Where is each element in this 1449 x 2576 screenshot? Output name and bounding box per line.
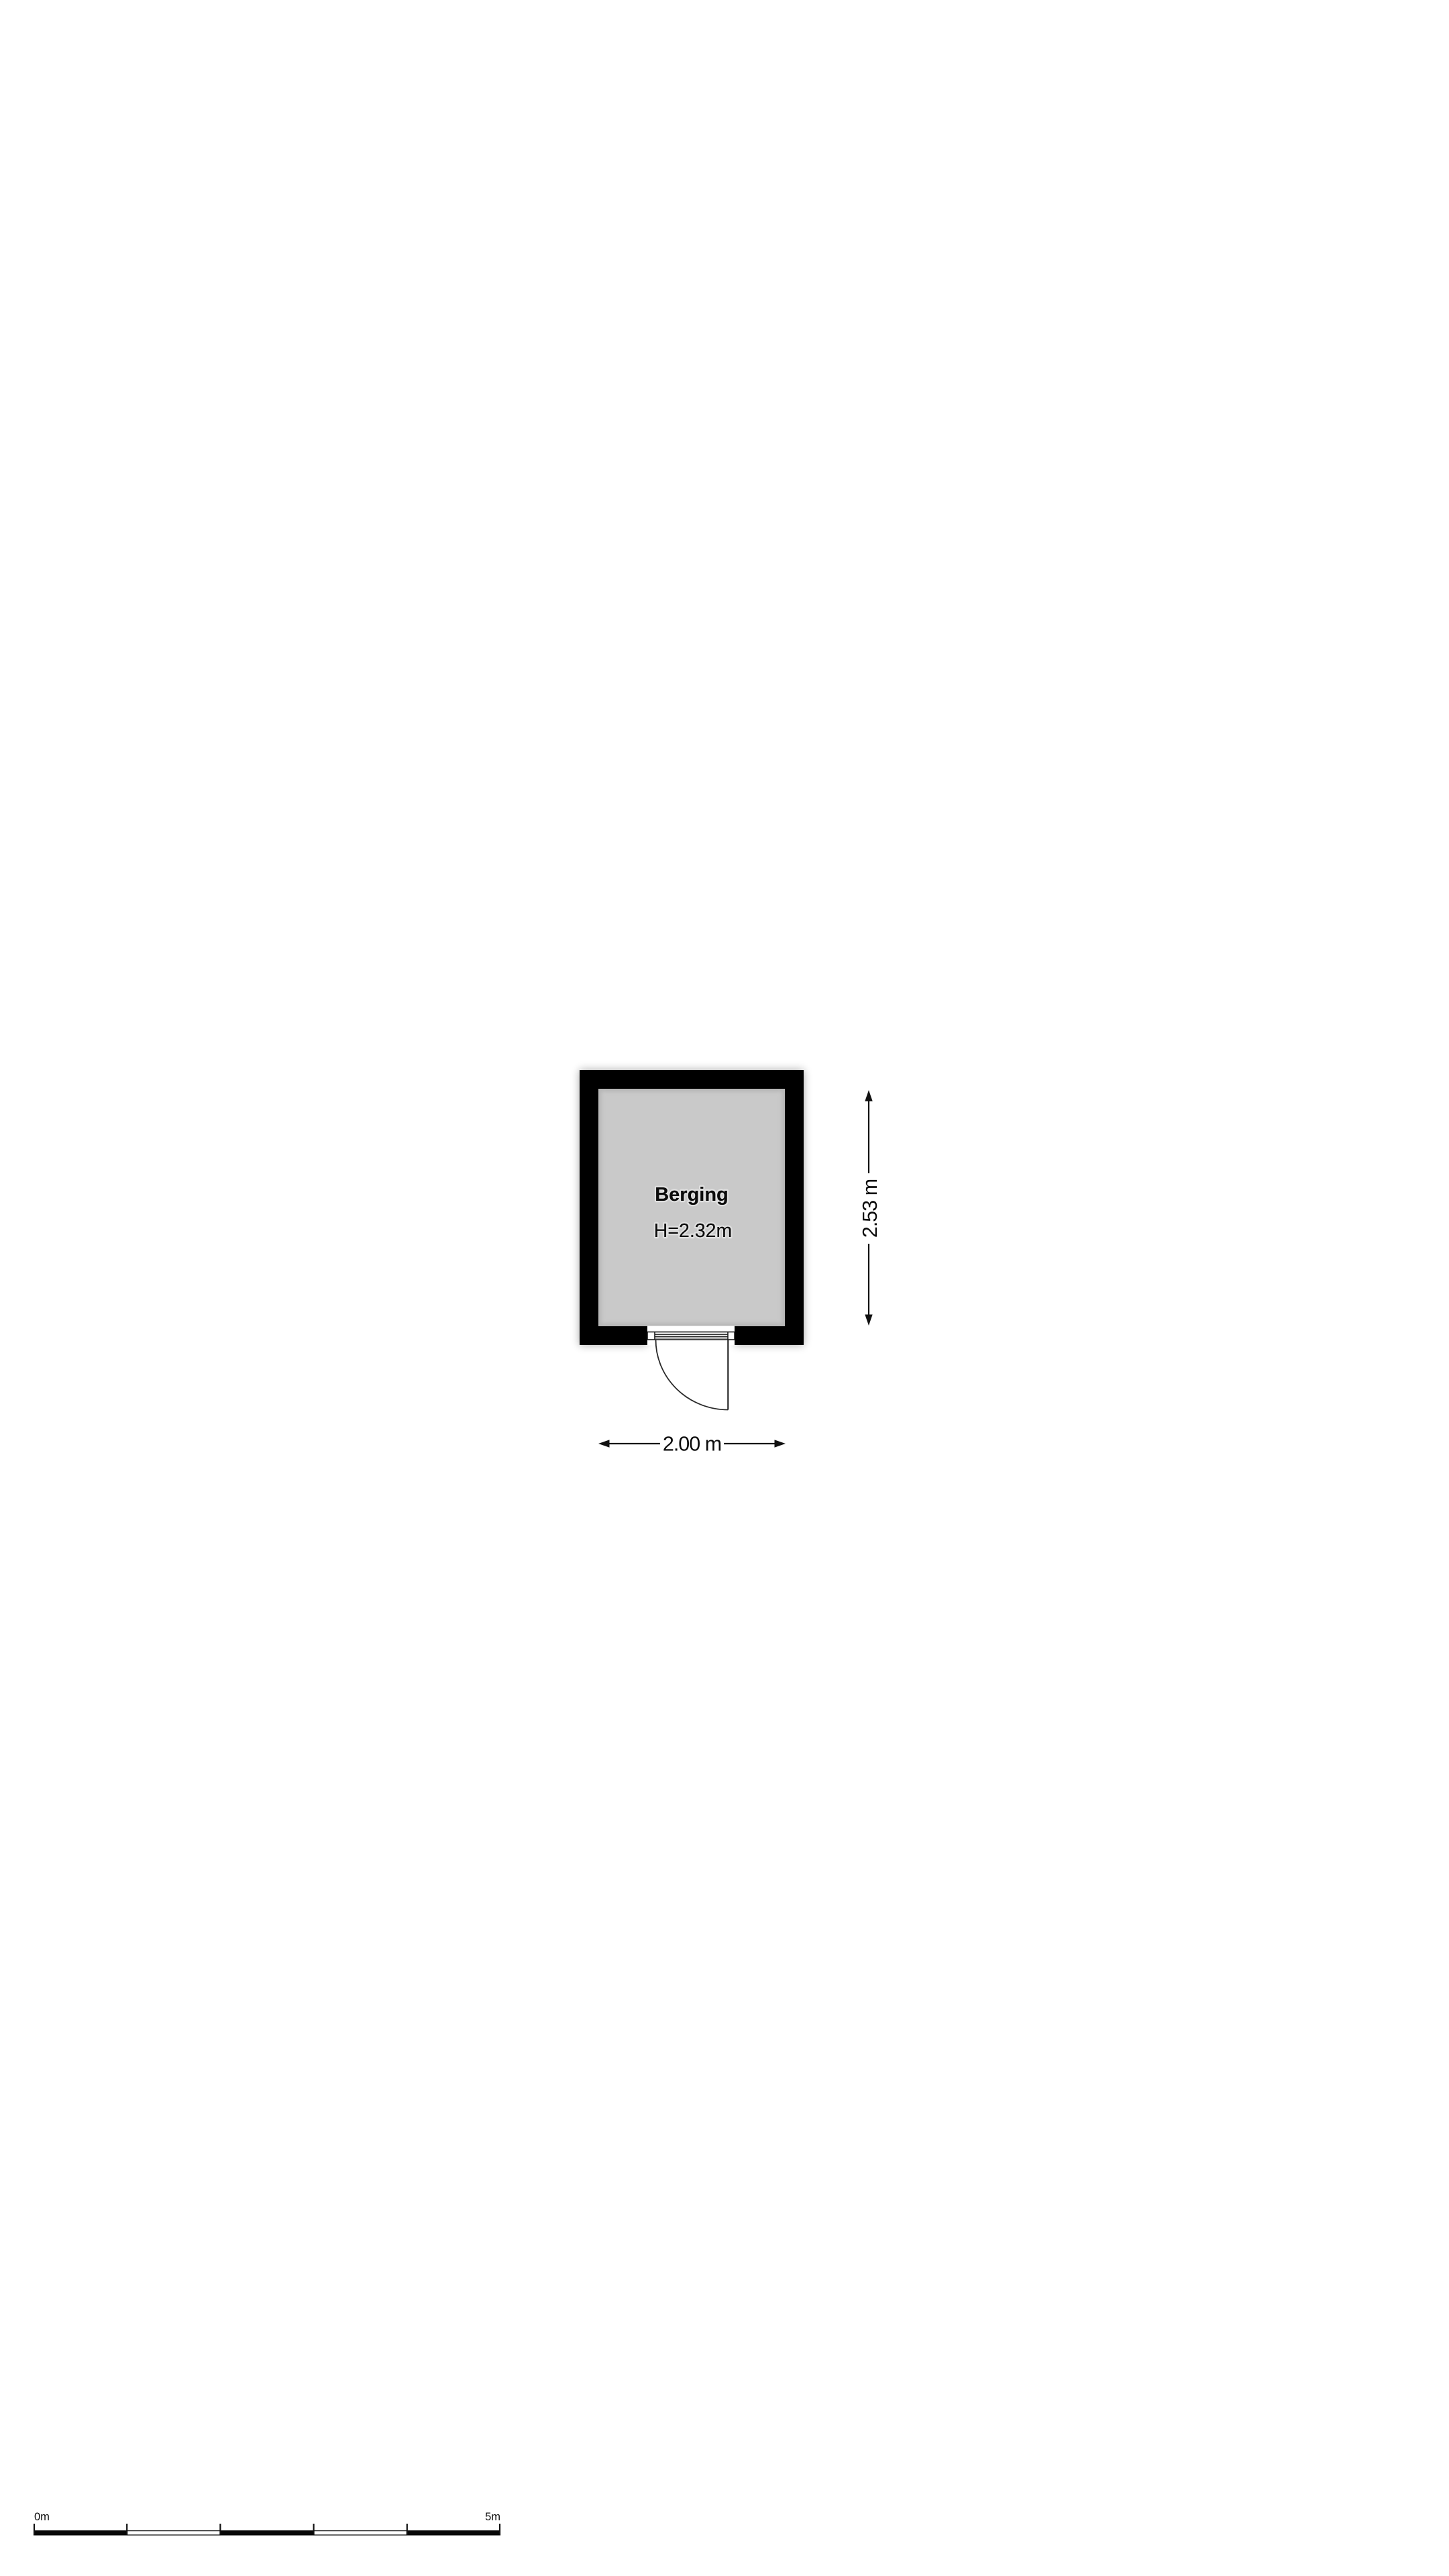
svg-text:0m: 0m xyxy=(34,2511,50,2523)
svg-text:Berging: Berging xyxy=(655,1184,729,1205)
svg-text:H=2.32m: H=2.32m xyxy=(654,1220,732,1242)
svg-text:2.53 m: 2.53 m xyxy=(859,1179,881,1238)
svg-text:2.00 m: 2.00 m xyxy=(663,1433,721,1456)
svg-text:5m: 5m xyxy=(485,2511,500,2523)
